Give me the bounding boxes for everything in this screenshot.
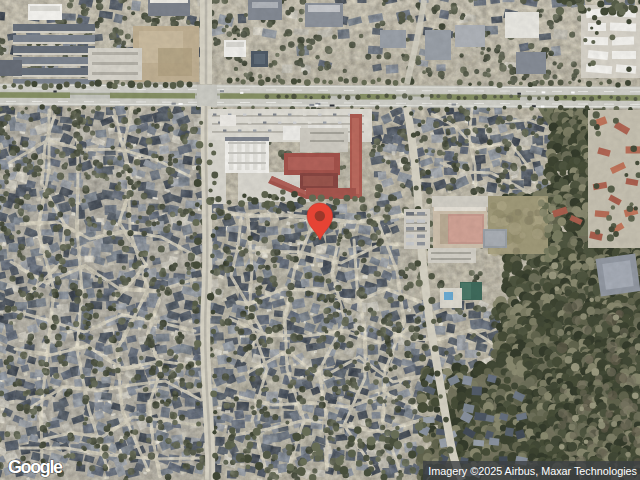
svg-text:Google: Google bbox=[8, 457, 63, 477]
svg-text:Imagery ©2025 Airbus, Maxar Te: Imagery ©2025 Airbus, Maxar Technologies bbox=[428, 465, 637, 477]
